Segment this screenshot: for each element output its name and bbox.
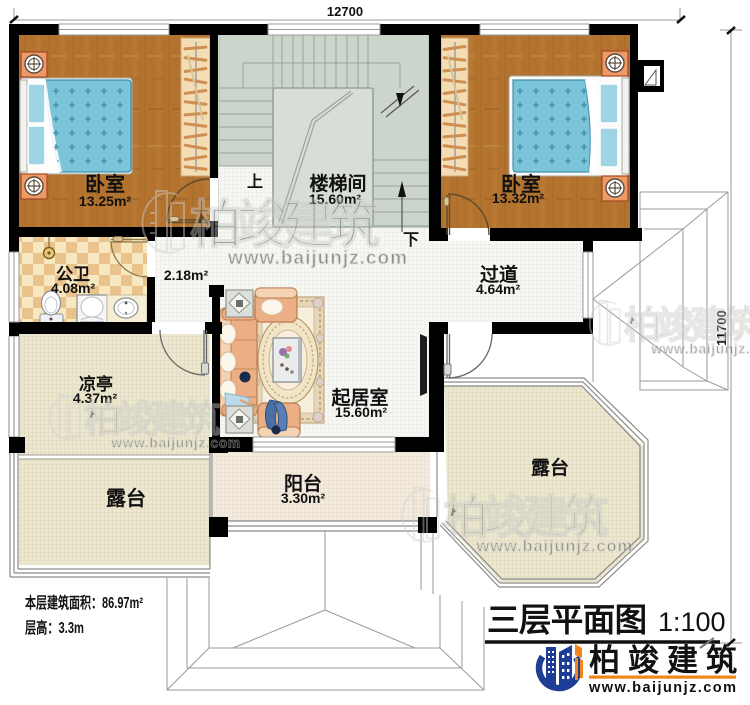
svg-text:柏竣建筑: 柏竣建筑: [190, 197, 380, 255]
svg-text:www.baijunjz.com: www.baijunjz.com: [650, 341, 750, 356]
svg-text:本层建筑面积：86.97m²: 本层建筑面积：86.97m²: [25, 593, 143, 612]
svg-text:1:100: 1:100: [658, 607, 726, 637]
svg-text:柏竣建筑: 柏竣建筑: [84, 398, 220, 440]
svg-text:2.18m²: 2.18m²: [164, 267, 209, 283]
svg-text:4.64m²: 4.64m²: [476, 281, 521, 297]
svg-text:www.baijunjz.com: www.baijunjz.com: [476, 536, 633, 555]
svg-text:层高：3.3m: 层高：3.3m: [25, 618, 84, 637]
svg-text:下: 下: [403, 232, 419, 249]
svg-text:柏竣建筑: 柏竣建筑: [444, 492, 609, 543]
svg-text:www.baijunjz.com: www.baijunjz.com: [110, 435, 240, 450]
svg-text:www.baijunjz.com: www.baijunjz.com: [588, 680, 736, 696]
svg-text:露台: 露台: [106, 486, 146, 510]
svg-text:www.baijunjz.com: www.baijunjz.com: [227, 248, 408, 269]
svg-text:12700: 12700: [327, 4, 363, 19]
svg-text:13.25m²: 13.25m²: [79, 193, 131, 209]
svg-text:15.60m²: 15.60m²: [335, 404, 387, 420]
svg-text:3.30m²: 3.30m²: [281, 490, 326, 506]
svg-text:柏竣建筑: 柏竣建筑: [624, 304, 750, 346]
svg-text:4.08m²: 4.08m²: [51, 280, 96, 296]
svg-text:露台: 露台: [531, 456, 569, 479]
svg-text:13.32m²: 13.32m²: [492, 190, 544, 206]
svg-text:上: 上: [247, 173, 263, 191]
svg-text:三层平面图: 三层平面图: [487, 602, 647, 638]
